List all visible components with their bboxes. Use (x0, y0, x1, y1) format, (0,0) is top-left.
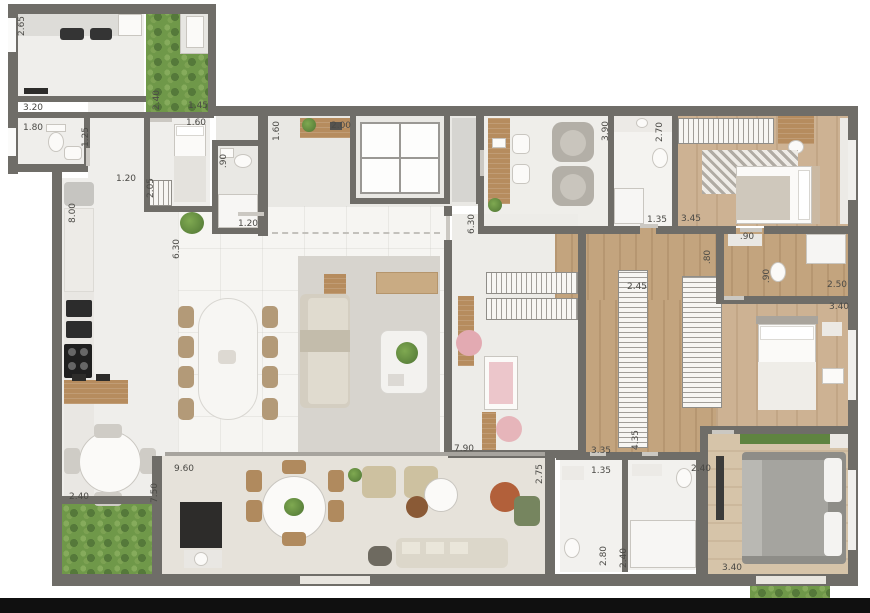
breakfast-table (79, 431, 141, 493)
planter-basin (186, 16, 204, 48)
terrace-sofa-cushion (402, 542, 420, 554)
door-leaf (86, 148, 90, 166)
dimension-label: 2.80 (599, 546, 609, 566)
bottom-garden (62, 504, 160, 578)
dimension-label: 2.40 (69, 492, 89, 502)
dimension-label: 2.50 (827, 280, 847, 290)
bath4-toilet (564, 538, 580, 558)
letterbox-bar (0, 598, 870, 613)
bath2-wall (672, 112, 678, 226)
bedroom3-bench (822, 368, 844, 384)
dimension-label: 3.35 (591, 446, 611, 456)
dimension-label: 4.35 (631, 430, 641, 450)
chair (94, 424, 122, 438)
terrace-armchair (362, 466, 396, 498)
master-tv-panel (716, 456, 724, 520)
chair (64, 448, 80, 474)
lounge-chair-seat (560, 130, 586, 156)
door-leaf (642, 452, 658, 456)
dimension-label: 1.45 (188, 101, 208, 111)
bath2-sink (636, 118, 648, 128)
living-console (376, 272, 438, 294)
lavabo-sink (64, 146, 82, 160)
dining-chair (262, 306, 278, 328)
bedroom3-headboard (756, 316, 818, 324)
bath2-shower (614, 188, 644, 224)
dining-chair (178, 306, 194, 328)
burner (68, 348, 76, 356)
bath5-shower (630, 520, 696, 568)
suite2-balcony (840, 118, 848, 224)
bedroom1-wall (444, 206, 452, 216)
window (848, 330, 856, 400)
dimension-label: 6.30 (467, 214, 477, 234)
wall (212, 140, 262, 146)
nursing-chair (496, 416, 522, 442)
terrace-chair (328, 470, 344, 492)
wall (8, 96, 146, 102)
dimension-label: 2.65 (17, 16, 27, 36)
washing-machine (118, 14, 142, 36)
bbq-sink (194, 552, 208, 566)
bath4-vanity (562, 466, 584, 480)
dimension-label: .90 (740, 232, 754, 242)
bath3-shower (806, 234, 846, 264)
dining-chair (262, 398, 278, 420)
bath5-toilet (676, 468, 692, 488)
dimension-label: 1.25 (81, 127, 91, 147)
kitchen-stool (96, 374, 110, 381)
wall (8, 164, 88, 172)
wall (52, 170, 62, 580)
bedroom1-wardrobe (486, 298, 578, 320)
door-leaf (446, 216, 450, 240)
office-plant (488, 198, 502, 212)
dimension-label: 1.60 (272, 121, 282, 141)
dining-chair (262, 336, 278, 358)
kitchen-sink (66, 300, 92, 317)
terrace-sofa-cushion (450, 542, 468, 554)
toilet-bowl (48, 132, 64, 152)
suite2-headboard (812, 166, 820, 224)
dimension-label: 1.35 (647, 215, 667, 225)
console-plant (302, 118, 316, 132)
elevator-cab (360, 122, 440, 194)
floor-plan-image: 2.653.201.801.252.401.451.601.602.002.05… (0, 0, 870, 613)
pouf (456, 330, 482, 356)
terrace-chair (246, 500, 262, 522)
dimension-label: 3.90 (601, 121, 611, 141)
dimension-label: 1.35 (591, 466, 611, 476)
window (848, 140, 856, 200)
dimension-label: 1.60 (186, 118, 206, 128)
dining-chair (178, 398, 194, 420)
elevator-wall (444, 114, 450, 204)
terrace-table-plant (284, 498, 304, 516)
ceiling-marker (272, 232, 440, 234)
dimension-label: 2.05 (146, 178, 156, 198)
burner (68, 362, 76, 370)
terrace-chair (282, 532, 306, 546)
dimension-label: 2.45 (627, 282, 647, 292)
service-bath-toilet (234, 154, 252, 168)
bath-block-wall (556, 452, 702, 460)
terrace-plant (348, 468, 362, 482)
deck-plant (180, 212, 204, 234)
service-bed-blanket (174, 156, 206, 202)
terrace-pouf (368, 546, 392, 566)
master-pillow (824, 458, 842, 502)
window (300, 576, 370, 584)
side-table (324, 274, 346, 294)
bath3-wall (716, 234, 724, 300)
dimension-label: 8.00 (68, 203, 78, 223)
coffee-table-plant (396, 342, 418, 364)
window (848, 470, 856, 550)
burner (80, 362, 88, 370)
wall (162, 574, 858, 586)
dimension-label: 3.40 (829, 302, 849, 312)
wall (258, 112, 268, 236)
dimension-label: 7.50 (150, 483, 160, 503)
dimension-label: 2.40 (152, 90, 162, 110)
wall (208, 4, 216, 116)
dimension-label: 1.20 (238, 219, 258, 229)
bath2-toilet (652, 148, 668, 168)
dimension-label: .90 (219, 154, 229, 168)
window (8, 18, 16, 52)
door-leaf (480, 150, 484, 176)
kitchen-stool (72, 374, 86, 381)
door-leaf (712, 430, 734, 434)
crib-mattress (489, 362, 513, 404)
terrace-chair (246, 470, 262, 492)
dining-chair (262, 366, 278, 388)
terrace-sliding-door (165, 452, 545, 456)
dimension-label: 2.75 (535, 464, 545, 484)
dimension-label: 9.60 (174, 464, 194, 474)
dining-chair (178, 336, 194, 358)
green-armchair (514, 496, 540, 526)
bedroom3-pillows (760, 326, 814, 340)
coffee-table-tray (388, 374, 404, 386)
wall (144, 206, 214, 212)
office-chair (512, 164, 530, 184)
wall (214, 106, 858, 116)
laptop (492, 138, 506, 148)
dimension-label: .80 (703, 250, 713, 264)
master-duvet-fold (742, 460, 762, 556)
dimension-label: 3.45 (681, 214, 701, 224)
wood-side-table (406, 496, 428, 518)
dimension-label: 2.70 (655, 122, 665, 142)
burner (80, 348, 88, 356)
corridor-wall (764, 226, 848, 234)
bedroom3-nightstand (822, 322, 842, 336)
sofa-throw (300, 330, 350, 352)
bedroom1-wall (578, 232, 586, 456)
door-leaf (150, 118, 172, 122)
dimension-label: 2.00 (331, 121, 351, 131)
suite2-blanket (736, 176, 790, 220)
dimension-label: 2.40 (619, 548, 629, 568)
bbq-grill (180, 502, 222, 548)
bedroom1-wardrobe (486, 272, 578, 294)
office-desk (488, 118, 510, 204)
bedroom1-vanity (482, 412, 496, 454)
table-centerpiece (218, 350, 236, 364)
dimension-label: 1.20 (116, 174, 136, 184)
toilet (46, 124, 66, 132)
laundry-sink (60, 28, 84, 40)
bath-block-wall (545, 452, 555, 578)
dimension-label: 3.40 (722, 563, 742, 573)
dining-chair (178, 366, 194, 388)
laundry-sink (90, 28, 112, 40)
dimension-label: 3.20 (23, 103, 43, 113)
wall (152, 456, 162, 576)
bath3-toilet (770, 262, 786, 282)
kitchen-table (64, 380, 128, 404)
dimension-label: 1.80 (23, 123, 43, 133)
corridor-wall (478, 226, 640, 234)
dimension-label: 7.90 (454, 444, 474, 454)
terrace-sofa-cushion (426, 542, 444, 554)
window (756, 576, 826, 584)
lounge-chair-seat (560, 174, 586, 200)
suite2-wardrobe (678, 118, 774, 144)
office-chair (512, 134, 530, 154)
bedroom1-wall (444, 240, 452, 454)
master-pillow (824, 512, 842, 556)
dimension-label: 6.30 (172, 239, 182, 259)
bath5-vanity (632, 464, 662, 476)
terrace-side-table (424, 478, 458, 512)
door-leaf (724, 296, 744, 300)
kitchen-sink (66, 321, 92, 338)
wall (8, 4, 214, 14)
elevator-wall (350, 198, 450, 204)
corridor-wardrobe (618, 270, 648, 448)
dimension-label: .90 (762, 269, 772, 283)
dimension-label: 2.40 (691, 464, 711, 474)
corridor-wall (656, 226, 736, 234)
door-leaf (238, 212, 264, 216)
laundry-bench (24, 88, 48, 94)
service-shaft (452, 118, 478, 202)
bedroom3-blanket (758, 362, 816, 410)
terrace-chair (328, 500, 344, 522)
window (8, 128, 16, 156)
suite2-pillows (798, 170, 810, 220)
wall (212, 146, 218, 232)
master-nightstand (830, 434, 848, 448)
terrace-chair (282, 460, 306, 474)
